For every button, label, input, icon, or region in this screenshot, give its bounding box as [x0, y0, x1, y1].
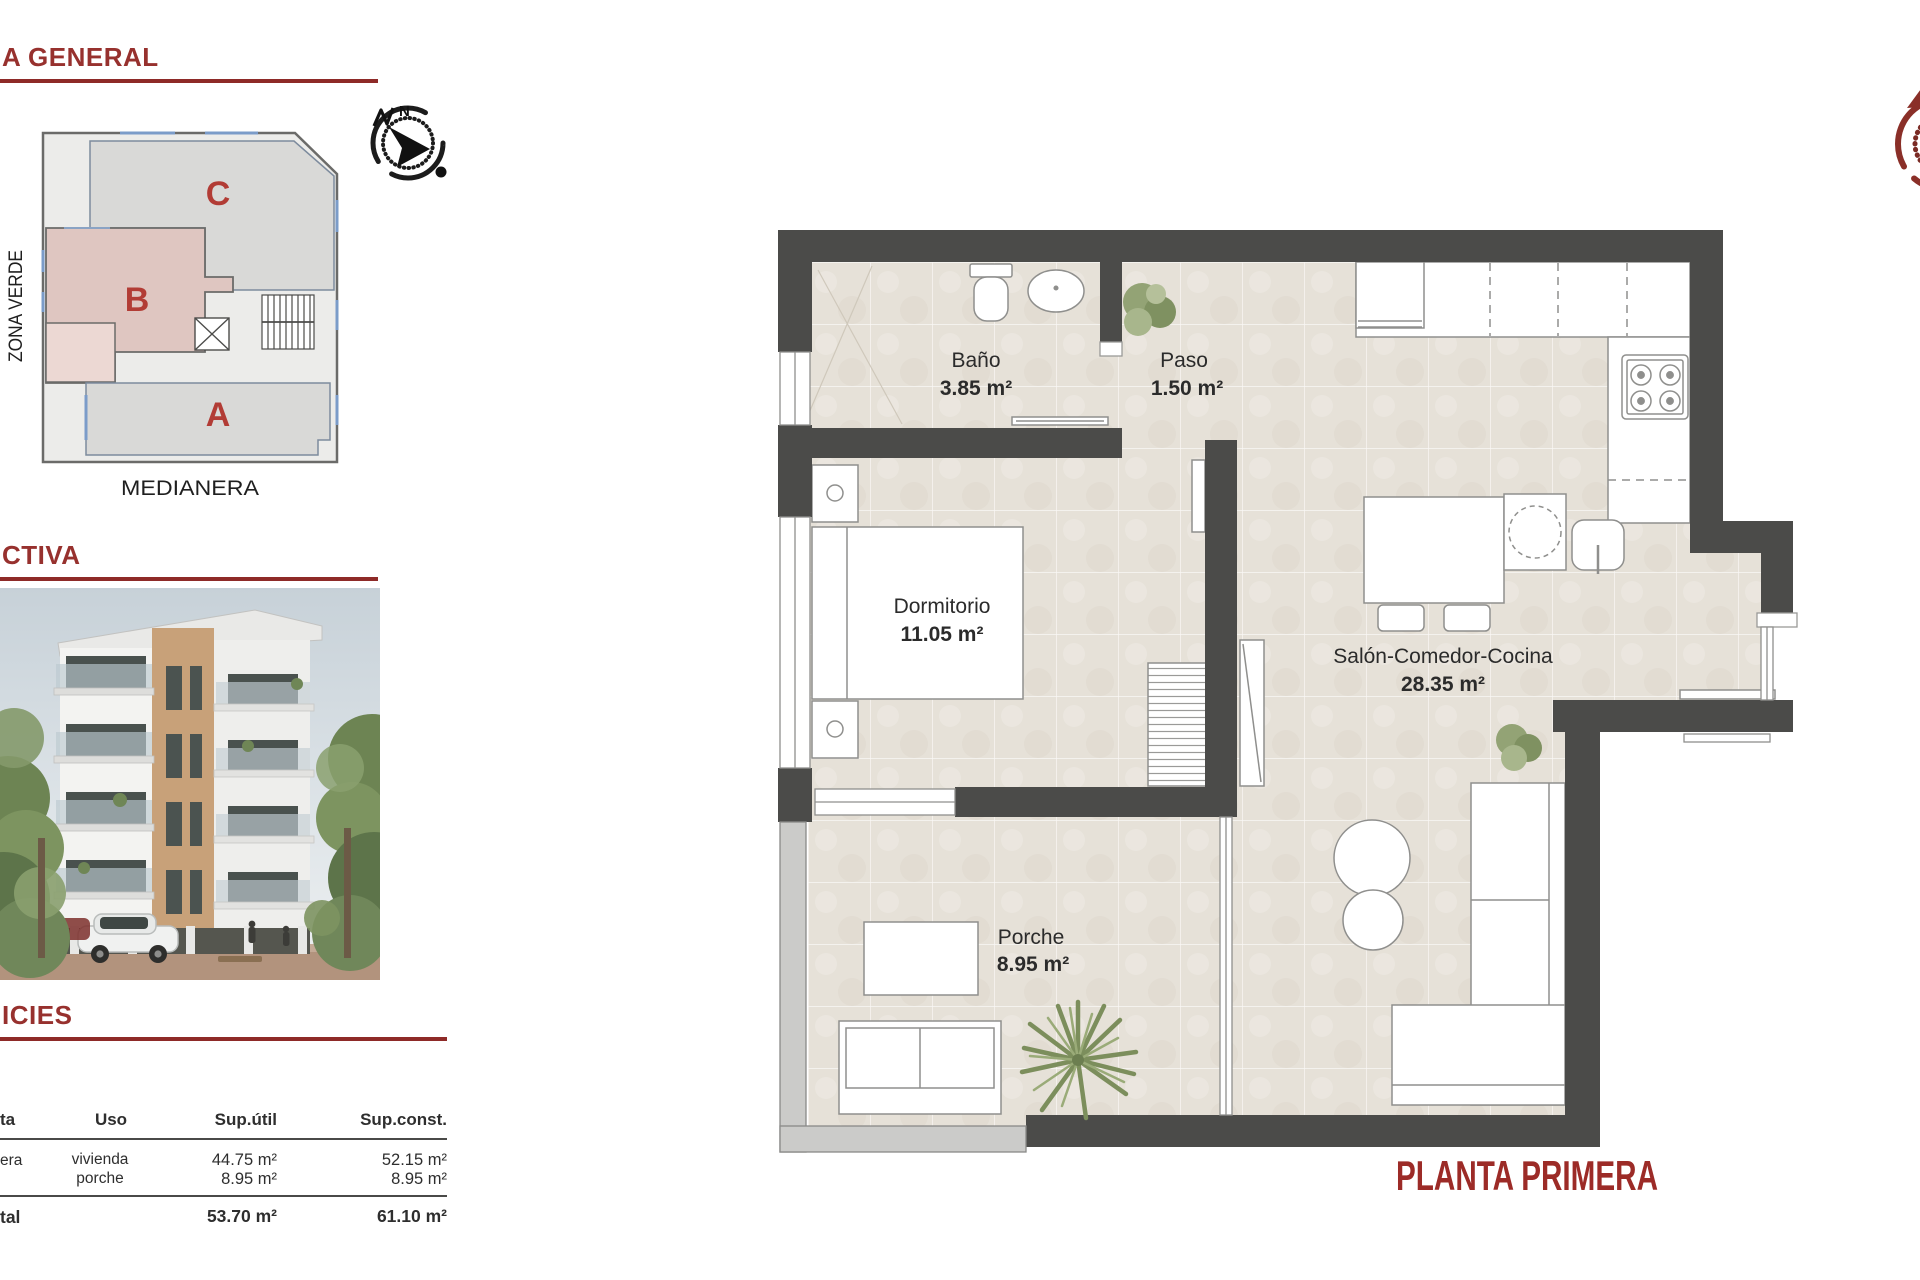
section-header-superficies-label: ICIES: [0, 1002, 447, 1028]
site-plan-diagram: C B A ZONA VERDE MEDIANERA N: [0, 90, 470, 510]
window-icon: [780, 517, 810, 768]
room-label-dormitorio: Dormitorio: [894, 595, 991, 618]
site-block-a-label: A: [206, 396, 231, 434]
section-header-perspectiva: CTIVA: [0, 542, 378, 581]
col-header-sup-const: Sup.const.: [327, 1110, 447, 1130]
bathroom-sink-icon: [1028, 270, 1084, 312]
site-elevator-icon: [195, 318, 229, 350]
col-header-sup-util: Sup.útil: [157, 1110, 277, 1130]
window-sill: [1684, 734, 1770, 742]
zona-verde-label: ZONA VERDE: [6, 250, 27, 362]
row-const-vivienda: 52.15 m²: [327, 1151, 447, 1170]
section-header-planta-general: A GENERAL: [0, 44, 378, 83]
window-icon: [780, 352, 810, 425]
floor-plan: Baño 3.85 m² Paso 1.50 m² Dormitorio 11.…: [745, 215, 1820, 1200]
window-icon: [1761, 627, 1773, 700]
compass-icon: N: [373, 103, 447, 178]
room-area-salon: 28.35 m²: [1401, 673, 1485, 696]
site-block-b-annex-shape: [46, 323, 115, 382]
total-sup-util: 53.70 m²: [157, 1206, 277, 1227]
col-header-planta: ta: [0, 1110, 15, 1130]
row-uso-vivienda: vivienda: [60, 1151, 140, 1169]
room-label-paso: Paso: [1160, 349, 1208, 372]
floorplan-sheet: { "left_panel": { "general_section": { "…: [0, 0, 1920, 1280]
compass-icon: [1885, 62, 1920, 232]
glass-divider: [1220, 817, 1232, 1115]
room-area-porche: 8.95 m²: [997, 953, 1069, 976]
site-block-c-label: C: [206, 175, 231, 213]
total-sup-const: 61.10 m²: [327, 1206, 447, 1227]
total-label: tal: [0, 1207, 20, 1228]
room-area-paso: 1.50 m²: [1151, 377, 1223, 400]
washer-icon: [1504, 494, 1566, 570]
kitchen-counter-top: [1356, 262, 1690, 337]
room-label-bano: Baño: [951, 349, 1000, 372]
row-util-vivienda: 44.75 m²: [157, 1151, 277, 1170]
chair-icon: [1378, 605, 1424, 631]
nightstand-icon: [812, 701, 858, 758]
kitchen-sink-icon: [1572, 520, 1624, 574]
round-table-icon: [1343, 890, 1403, 950]
porch-table-icon: [864, 922, 978, 995]
room-label-salon: Salón-Comedor-Cocina: [1333, 645, 1553, 668]
row-const-porche: 8.95 m²: [327, 1170, 447, 1189]
porch-sofa-icon: [839, 1021, 1001, 1114]
room-area-dormitorio: 11.05 m²: [901, 623, 984, 646]
door-leaf-icon: [1192, 460, 1205, 532]
radiator-icon: [1148, 663, 1208, 786]
nightstand-icon: [812, 465, 858, 522]
table-rule-bottom: [0, 1195, 447, 1197]
row-util-porche: 8.95 m²: [157, 1170, 277, 1189]
col-header-uso: Uso: [71, 1110, 151, 1130]
section-header-perspectiva-label: CTIVA: [0, 542, 378, 568]
plan-title: PLANTA PRIMERA: [1396, 1152, 1658, 1199]
room-label-porche: Porche: [998, 926, 1065, 949]
section-header-planta-general-label: A GENERAL: [0, 44, 378, 70]
medianera-label: MEDIANERA: [121, 477, 259, 500]
site-stairs-icon: [262, 295, 314, 349]
chair-icon: [1444, 605, 1490, 631]
section-header-superficies: ICIES: [0, 1002, 447, 1041]
site-block-b-label: B: [125, 281, 150, 319]
towel-radiator-icon: [1012, 417, 1108, 425]
toilet-icon: [970, 264, 1012, 321]
row-uso-porche: porche: [60, 1170, 140, 1188]
room-area-bano: 3.85 m²: [940, 377, 1012, 400]
table-rule-top: [0, 1138, 447, 1140]
site-plan-footprint: [43, 133, 337, 462]
compass-north-letter: N: [399, 103, 410, 120]
row-planta: era: [0, 1152, 22, 1170]
round-table-icon: [1334, 820, 1410, 896]
window-icon: [815, 789, 955, 815]
stove-icon: [1622, 355, 1688, 419]
wardrobe-door-icon: [1240, 640, 1264, 786]
building-render-image: [0, 588, 380, 980]
